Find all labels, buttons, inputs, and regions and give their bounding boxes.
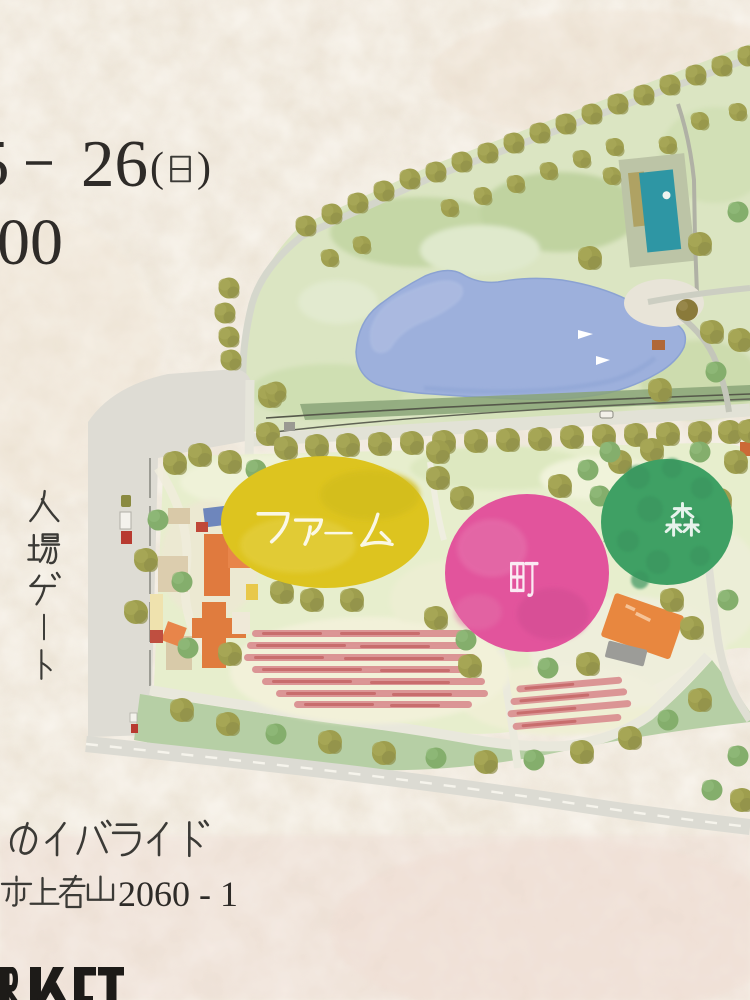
- svg-text:00: 00: [0, 206, 63, 279]
- svg-text:26: 26: [81, 127, 148, 201]
- svg-text:(: (: [150, 145, 164, 191]
- svg-text:5: 5: [0, 127, 10, 201]
- svg-text:2060 - 1: 2060 - 1: [118, 874, 238, 914]
- svg-text:): ): [197, 145, 211, 191]
